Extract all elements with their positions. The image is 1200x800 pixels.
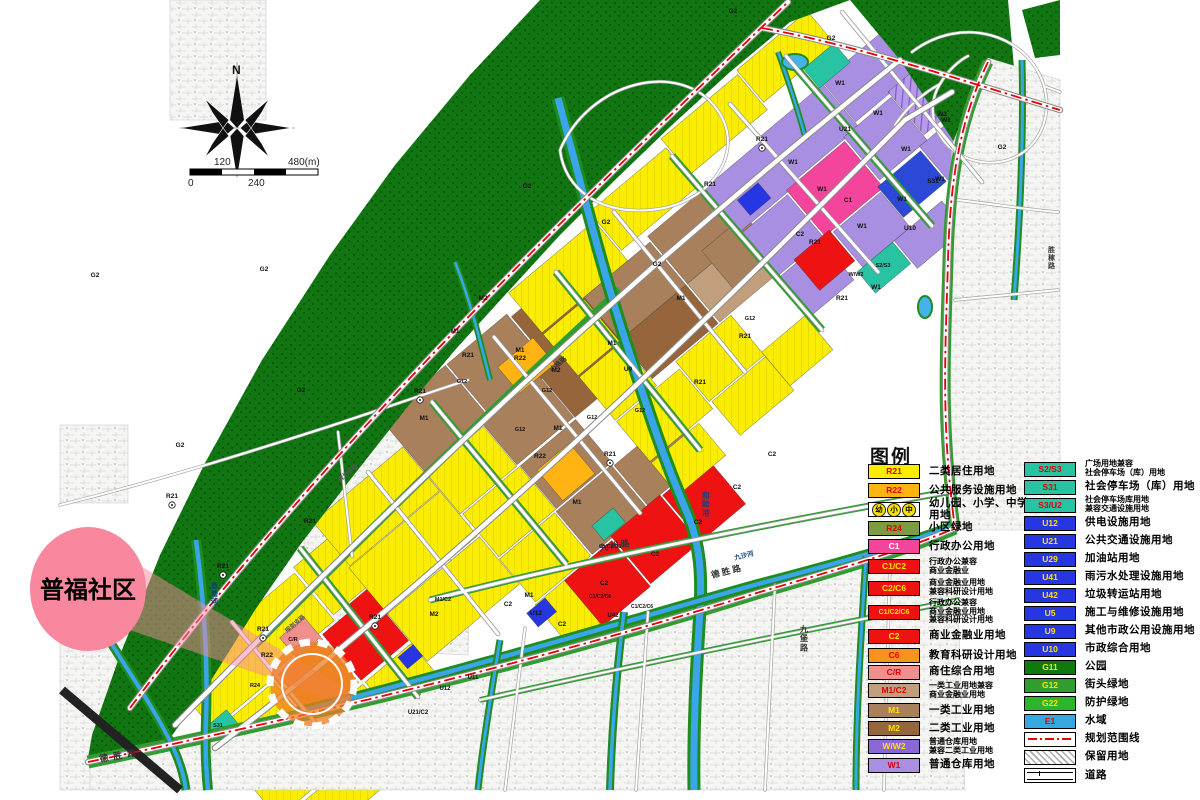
parcel-label-C2: C2 bbox=[504, 601, 513, 608]
legend-swatch-E1: E1 bbox=[1024, 714, 1076, 729]
callout-label: 普福社区 bbox=[40, 576, 136, 604]
legend-swatch-M2: M2 bbox=[868, 721, 920, 736]
parcel-label-W1: W1 bbox=[941, 117, 951, 124]
legend-swatch-U10: U10 bbox=[1024, 642, 1076, 657]
legend-label: 街头绿地 bbox=[1085, 679, 1129, 691]
parcel-label-W1: W1 bbox=[857, 223, 867, 230]
legend-label: 行政办公兼容 商业金融业用地 兼容科研设计用地 bbox=[929, 599, 993, 625]
parcel-label-G12: G12 bbox=[635, 408, 645, 414]
legend-row-U42: U42垃圾转运站用地 bbox=[1024, 586, 1200, 604]
legend-row-C1-C2: C1/C2行政办公兼容 商业金融业 bbox=[868, 556, 1028, 577]
compass-north-label: N bbox=[232, 63, 241, 77]
parcel-label-C2: C2 bbox=[768, 451, 777, 458]
legend-swatch-S2-S3: S2/S3 bbox=[1024, 462, 1076, 477]
legend-swatch-C1-C2-C6: C1/C2/C6 bbox=[868, 605, 920, 620]
legend-label: 公共服务设施用地 bbox=[929, 485, 1017, 497]
parcel-label-M1: M1 bbox=[572, 499, 581, 506]
legend-row-G12: G12街头绿地 bbox=[1024, 676, 1200, 694]
parcel-label-R22: R22 bbox=[534, 453, 546, 460]
legend-label: 商业金融业用地 兼容科研设计用地 bbox=[929, 579, 993, 597]
legend-label: 公园 bbox=[1085, 661, 1107, 673]
planning-map-screenshot: 普福社区 G2G2G2G2G2G2G2G2G2G2R21R21R21R21R21… bbox=[0, 0, 1200, 800]
legend-swatch-C6: C6 bbox=[868, 648, 920, 663]
parcel-label-G2: G2 bbox=[523, 183, 532, 190]
legend-swatch-DASH bbox=[1024, 732, 1076, 747]
legend-label: 广场用地兼容 社会停车场（库）用地 bbox=[1085, 460, 1165, 478]
parcel-label-R21: R21 bbox=[739, 333, 751, 340]
legend-label: 普通仓库用地 bbox=[929, 759, 995, 771]
parcel-label-R21: R21 bbox=[694, 379, 706, 386]
legend-label: 道路 bbox=[1085, 770, 1107, 782]
legend-label: 一类工业用地 bbox=[929, 705, 995, 717]
parcel-label-R21: R21 bbox=[836, 295, 848, 302]
legend-row-S31: S31社会停车场（库）用地 bbox=[1024, 478, 1200, 496]
parcel-label-M1-C2: M1/C2 bbox=[435, 597, 451, 603]
parcel-label-C-R: C/R bbox=[288, 637, 298, 643]
legend-label: 雨污水处理设施用地 bbox=[1085, 571, 1184, 583]
parcel-label-U12: U12 bbox=[439, 686, 451, 692]
legend-label: 社会停车场库用地 兼容交通设施用地 bbox=[1085, 496, 1149, 514]
kindergarten-icon: 幼 bbox=[872, 503, 886, 517]
parcel-label-U21-C2: U21/C2 bbox=[408, 710, 429, 716]
scale-480: 480(m) bbox=[288, 157, 320, 168]
legend-swatch-G22: G22 bbox=[1024, 696, 1076, 711]
legend-row-ROAD: 道路 bbox=[1024, 766, 1200, 785]
parcel-label-W1: W1 bbox=[817, 186, 827, 193]
legend-label: 施工与维修设施用地 bbox=[1085, 607, 1184, 619]
parcel-label-G12: G12 bbox=[542, 388, 552, 394]
legend-row-W1: W1普通仓库用地 bbox=[868, 756, 1028, 774]
parcel-label-U12: U12 bbox=[530, 610, 542, 617]
parcel-label-W1: W1 bbox=[873, 110, 883, 117]
legend-row-C6: C6教育科研设计用地 bbox=[868, 647, 1028, 664]
legend-row-W-W2: W/W2普通仓库用地 兼容二类工业用地 bbox=[868, 737, 1028, 756]
legend-row-C2: C2商业金融业用地 bbox=[868, 625, 1028, 647]
parcel-label-W1: W1 bbox=[897, 196, 907, 203]
scale-bar: 120 480(m) 0 240 bbox=[188, 157, 320, 189]
parcel-label-C2: C2 bbox=[558, 621, 567, 628]
legend-label: 二类居住用地 bbox=[929, 466, 995, 478]
legend-label: 保留用地 bbox=[1085, 751, 1129, 763]
legend-swatch-ROAD bbox=[1024, 768, 1076, 783]
legend-swatch-U41: U41 bbox=[1024, 570, 1076, 585]
parcel-label-C2: C2 bbox=[733, 484, 742, 491]
legend-swatch-C2-C6: C2/C6 bbox=[868, 581, 920, 596]
parcel-label-R21: R21 bbox=[369, 614, 381, 621]
parcel-label-W1: W1 bbox=[788, 159, 798, 166]
legend-label: 公共交通设施用地 bbox=[1085, 535, 1173, 547]
legend-swatch-HATCH bbox=[1024, 750, 1076, 765]
parcel-label-R21: R21 bbox=[257, 626, 269, 633]
legend-label: 社会停车场（库）用地 bbox=[1085, 481, 1195, 493]
legend-swatch-C1: C1 bbox=[868, 539, 920, 554]
legend-row-G22: G22防护绿地 bbox=[1024, 694, 1200, 712]
parcel-label-W2: W2 bbox=[937, 111, 947, 118]
legend-row-G11: G11公园 bbox=[1024, 658, 1200, 676]
parcel-label-C2: C2 bbox=[694, 519, 703, 526]
legend-label: 防护绿地 bbox=[1085, 697, 1129, 709]
road-label: 德 胜 路 bbox=[710, 563, 742, 580]
parcel-label-M2: M2 bbox=[429, 611, 438, 618]
legend-swatch-U29: U29 bbox=[1024, 552, 1076, 567]
parcel-label-U42: U42 bbox=[607, 613, 619, 619]
parcel-label-R21: R21 bbox=[704, 181, 716, 188]
legend-label: 一类工业用地兼容 商业金融业用地 bbox=[929, 682, 993, 700]
legend-label: 其他市政公用设施用地 bbox=[1085, 625, 1195, 637]
legend-label: 加油站用地 bbox=[1085, 553, 1140, 565]
road-label: 备塘河 bbox=[210, 581, 219, 606]
parcel-label-G2: G2 bbox=[827, 35, 836, 42]
parcel-label-G2: G2 bbox=[998, 144, 1007, 151]
legend-row-S3-U2: S3/U2社会停车场库用地 兼容交通设施用地 bbox=[1024, 496, 1200, 514]
legend-label: 小区绿地 bbox=[929, 522, 973, 534]
legend-label: 市政综合用地 bbox=[1085, 643, 1151, 655]
parcel-label-M2: M2 bbox=[478, 295, 487, 302]
parcel-label-M1: M1 bbox=[419, 415, 428, 422]
parcel-label-C1-C2-C6: C1/C2/C6 bbox=[631, 604, 653, 610]
parcel-label-R21: R21 bbox=[414, 388, 426, 395]
parcel-label-W1: W1 bbox=[871, 284, 881, 291]
parcel-label-C2: C2 bbox=[796, 231, 805, 238]
parcel-label-R21: R21 bbox=[462, 352, 474, 359]
legend-swatch-R24: R24 bbox=[868, 521, 920, 536]
legend-swatch-U12: U12 bbox=[1024, 516, 1076, 531]
legend-swatch-U5: U5 bbox=[1024, 606, 1076, 621]
school-marker-dot bbox=[374, 625, 376, 627]
legend-swatch-M1-C2: M1/C2 bbox=[868, 683, 920, 698]
legend-row-HATCH: 保留用地 bbox=[1024, 748, 1200, 766]
legend-swatch-W1: W1 bbox=[868, 758, 920, 773]
school-marker-dot bbox=[761, 147, 763, 149]
parcel-label-G2: G2 bbox=[653, 261, 662, 268]
road-label: 九沙河 bbox=[732, 548, 755, 562]
legend-label: 商业金融业用地 bbox=[929, 630, 1006, 642]
scale-120: 120 bbox=[214, 157, 231, 168]
legend-row-U29: U29加油站用地 bbox=[1024, 550, 1200, 568]
legend-row-E1: E1水域 bbox=[1024, 712, 1200, 730]
school-marker-dot bbox=[609, 462, 611, 464]
legend-label: 行政办公兼容 商业金融业 bbox=[929, 558, 977, 576]
parcel-label-R22: R22 bbox=[514, 355, 526, 362]
legend-row-C-R: C/R商住综合用地 bbox=[868, 664, 1028, 680]
legend-column-right: S2/S3广场用地兼容 社会停车场（库）用地S31社会停车场（库）用地S3/U2… bbox=[1024, 460, 1200, 785]
school-marker-dot bbox=[419, 399, 421, 401]
parcel-label-G12: G12 bbox=[457, 379, 467, 385]
legend-swatch-S3-U2: S3/U2 bbox=[1024, 498, 1076, 513]
legend-row-S2-S3: S2/S3广场用地兼容 社会停车场（库）用地 bbox=[1024, 460, 1200, 478]
pond-2 bbox=[918, 296, 932, 318]
parcel-label-G2: G2 bbox=[176, 442, 185, 449]
legend-swatch-U42: U42 bbox=[1024, 588, 1076, 603]
parcel-label-C2: C2 bbox=[600, 580, 609, 587]
legend-row-C2-C6: C2/C6商业金融业用地 兼容科研设计用地 bbox=[868, 577, 1028, 599]
legend-row-R24: R24小区绿地 bbox=[868, 519, 1028, 537]
parcel-label-R21: R21 bbox=[217, 563, 229, 570]
scale-0: 0 bbox=[188, 178, 194, 189]
parcel-label-R21: R21 bbox=[809, 239, 821, 246]
legend-swatch-C1-C2: C1/C2 bbox=[868, 559, 920, 574]
legend-label: 水域 bbox=[1085, 715, 1107, 727]
parcel-label-G2: G2 bbox=[729, 8, 738, 15]
parcel-label-G2: G2 bbox=[91, 272, 100, 279]
parcel-label-C1: C1 bbox=[844, 197, 853, 204]
parcel-label-R24: R24 bbox=[250, 683, 261, 689]
legend-row-C1: C1行政办公用地 bbox=[868, 537, 1028, 556]
legend-row-U21: U21公共交通设施用地 bbox=[1024, 532, 1200, 550]
legend-swatch-G12: G12 bbox=[1024, 678, 1076, 693]
parcel-label-G12: G12 bbox=[515, 427, 525, 433]
topright-green-2 bbox=[1022, 0, 1060, 58]
legend-label: 教育科研设计用地 bbox=[929, 650, 1017, 662]
parcel-label-C1-C2-C6: C1/C2/C6 bbox=[589, 594, 611, 600]
legend-row-U12: U12供电设施用地 bbox=[1024, 514, 1200, 532]
scale-240: 240 bbox=[248, 178, 265, 189]
legend-swatch-KIDS: 幼小中 bbox=[868, 502, 920, 517]
legend-label: 商住综合用地 bbox=[929, 666, 995, 678]
legend-label: 规划范围线 bbox=[1085, 733, 1140, 745]
legend-swatch-U9: U9 bbox=[1024, 624, 1076, 639]
road-label: 九堡路 bbox=[799, 624, 809, 652]
parcel-label-G2: G2 bbox=[602, 219, 611, 226]
parcel-label-S31: S31 bbox=[213, 723, 223, 729]
legend-row-U10: U10市政综合用地 bbox=[1024, 640, 1200, 658]
parcel-label-W1: W1 bbox=[835, 80, 845, 87]
kindergarten-icon: 小 bbox=[887, 503, 901, 517]
legend-label: 普通仓库用地 兼容二类工业用地 bbox=[929, 738, 993, 756]
school-marker-dot bbox=[222, 574, 224, 576]
parcel-label-R21: R21 bbox=[756, 136, 768, 143]
legend-row-KIDS: 幼小中幼儿园、小学、中学用地 bbox=[868, 500, 1028, 519]
legend-swatch-C-R: C/R bbox=[868, 665, 920, 680]
parcel-label-M1: M1 bbox=[450, 328, 459, 335]
legend-row-U5: U5施工与维修设施用地 bbox=[1024, 604, 1200, 622]
parcel-label-U9: U9 bbox=[624, 366, 633, 373]
legend-label: 二类工业用地 bbox=[929, 723, 995, 735]
school-marker-dot bbox=[262, 637, 264, 639]
parcel-label-U21: U21 bbox=[839, 126, 851, 133]
parcel-label-M1: M1 bbox=[676, 295, 685, 302]
parcel-label-S31: S31 bbox=[927, 178, 939, 185]
legend-swatch-R21: R21 bbox=[868, 464, 920, 479]
parcel-label-M1: M1 bbox=[607, 340, 616, 347]
parcel-label-M1: M1 bbox=[553, 425, 562, 432]
legend-label: 供电设施用地 bbox=[1085, 517, 1151, 529]
legend-row-M2: M2二类工业用地 bbox=[868, 720, 1028, 737]
legend-row-DASH: 规划范围线 bbox=[1024, 730, 1200, 748]
legend-row-U41: U41雨污水处理设施用地 bbox=[1024, 568, 1200, 586]
legend-row-M1: M1一类工业用地 bbox=[868, 701, 1028, 720]
legend-row-U9: U9其他市政公用设施用地 bbox=[1024, 622, 1200, 640]
school-marker-dot bbox=[171, 504, 173, 506]
legend-label: 幼儿园、小学、中学用地 bbox=[929, 498, 1028, 521]
legend-row-C1-C2-C6: C1/C2/C6行政办公兼容 商业金融业用地 兼容科研设计用地 bbox=[868, 599, 1028, 625]
parcel-label-W1: W1 bbox=[901, 146, 911, 153]
road-label: 和睦港 bbox=[702, 490, 710, 517]
legend-label: 行政办公用地 bbox=[929, 541, 995, 553]
parcel-label-C2: C2 bbox=[651, 551, 660, 558]
legend-swatch-M1: M1 bbox=[868, 703, 920, 718]
legend-swatch-S31: S31 bbox=[1024, 480, 1076, 495]
legend-swatch-U21: U21 bbox=[1024, 534, 1076, 549]
road-label: 胜稼路 bbox=[1047, 245, 1056, 270]
parcel-label-M1: M1 bbox=[524, 592, 533, 599]
legend-row-M1-C2: M1/C2一类工业用地兼容 商业金融业用地 bbox=[868, 680, 1028, 701]
legend-swatch-R22: R22 bbox=[868, 483, 920, 498]
parcel-label-U10: U10 bbox=[904, 225, 916, 232]
kindergarten-icon: 中 bbox=[902, 503, 916, 517]
parcel-label-G2: G2 bbox=[297, 387, 306, 394]
parcel-label-G2: G2 bbox=[260, 266, 269, 273]
legend-swatch-W-W2: W/W2 bbox=[868, 739, 920, 754]
parcel-label-R21: R21 bbox=[166, 493, 178, 500]
parcel-label-G12: G12 bbox=[745, 316, 755, 322]
parcel-label-R21: R21 bbox=[304, 518, 316, 525]
parcel-label-U11: U11 bbox=[468, 675, 479, 681]
parcel-label-M1: M1 bbox=[515, 347, 524, 354]
legend-label: 垃圾转运站用地 bbox=[1085, 589, 1162, 601]
legend-column-left: R21二类居住用地R22公共服务设施用地幼小中幼儿园、小学、中学用地R24小区绿… bbox=[868, 462, 1028, 774]
legend-swatch-C2: C2 bbox=[868, 629, 920, 644]
parcel-label-W-W2: W/W2 bbox=[849, 272, 864, 278]
parcel-label-G12: G12 bbox=[587, 415, 597, 421]
parcel-label-R21: R21 bbox=[604, 451, 616, 458]
legend-swatch-G11: G11 bbox=[1024, 660, 1076, 675]
parcel-label-S2-S3: S2/S3 bbox=[876, 263, 891, 269]
parcel-label-R22: R22 bbox=[261, 652, 273, 659]
legend-row-R21: R21二类居住用地 bbox=[868, 462, 1028, 481]
